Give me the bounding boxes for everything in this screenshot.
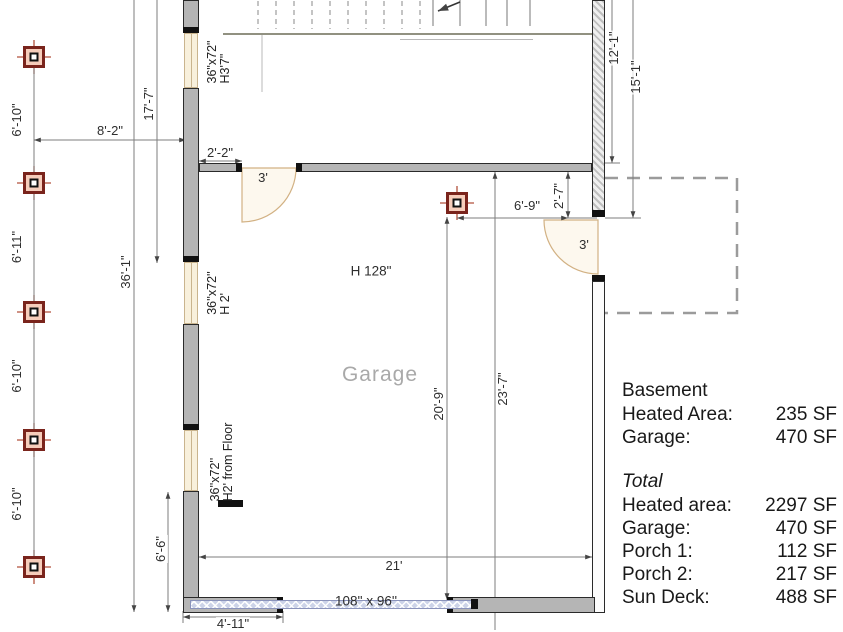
stair-direction-arrow (438, 2, 460, 11)
dim-label-8-2: 8'-2" (96, 124, 124, 138)
summary-row: Porch 2: 217 SF (622, 563, 837, 586)
dim-label-4-11: 4'-11" (216, 617, 250, 631)
column-marker (446, 192, 468, 214)
wall-right-bottom (592, 281, 605, 613)
column-cross-ticks (17, 40, 474, 584)
window-mullion (191, 263, 192, 323)
garage-door-end-cap (471, 599, 478, 609)
summary-row-value: 470 SF (776, 517, 837, 540)
side-door-swing (544, 220, 598, 274)
ceiling-height-label: H 128" (351, 264, 392, 279)
summary-row-label: Heated area: (622, 494, 732, 517)
wall-right-top (592, 0, 605, 217)
dim-label-17-7: 17'-7" (142, 86, 156, 121)
dim-label-21: 21' (385, 559, 404, 573)
floor-plan-canvas: 6'-10" 6'-11" 6'-10" 6'-10" 8'-2" 17'-7"… (0, 0, 843, 632)
wall-left-mid-b (183, 324, 199, 430)
summary-basement-title: Basement (622, 379, 837, 403)
column-core (30, 308, 39, 317)
column-marker (23, 556, 45, 578)
summary-row: Heated area: 2297 SF (622, 494, 837, 517)
interior-door-swing (242, 168, 296, 222)
door-jamb (236, 163, 242, 172)
dim-label-2-7: 2'-7" (552, 182, 566, 210)
dim-label-col-spacing-3: 6'-10" (10, 358, 24, 393)
summary-row-value: 2297 SF (765, 494, 837, 517)
dimension-lines (34, 0, 641, 630)
window-label-3: 36''x72'' H2' from Floor (209, 422, 235, 503)
summary-gap (622, 449, 837, 470)
summary-row-label: Garage: (622, 517, 691, 540)
column-core (30, 53, 39, 62)
dim-label-23-7: 23'-7" (496, 371, 510, 406)
window-note: H3'7" (219, 41, 232, 84)
dim-label-6-9: 6'-9" (513, 199, 541, 213)
summary-row: Heated Area: 235 SF (622, 403, 837, 426)
column-core (30, 563, 39, 572)
column-core (30, 436, 39, 445)
summary-row-label: Garage: (622, 426, 691, 449)
column-marker (23, 172, 45, 194)
summary-row-label: Porch 1: (622, 540, 693, 563)
column-marker (23, 429, 45, 451)
summary-row-label: Sun Deck: (622, 586, 710, 609)
dim-label-col-spacing-2: 6'-11" (10, 230, 24, 264)
window-1 (184, 33, 198, 88)
summary-row: Porch 1: 112 SF (622, 540, 837, 563)
summary-total-title: Total (622, 470, 837, 494)
window-mullion (191, 431, 192, 490)
window-mullion (191, 34, 192, 87)
summary-row: Garage: 470 SF (622, 426, 837, 449)
dim-label-2-2: 2'-2" (206, 146, 234, 160)
window-note: H2' from Floor (222, 423, 235, 502)
dim-label-col-spacing-1: 6'-10" (10, 102, 24, 137)
summary-row-label: Heated Area: (622, 403, 733, 426)
wall-left-bottom (183, 491, 199, 613)
summary-row: Sun Deck: 488 SF (622, 586, 837, 609)
summary-row-value: 217 SF (776, 563, 837, 586)
garage-door-size-label: 108'' x 96'' (335, 594, 397, 609)
summary-row-value: 470 SF (776, 426, 837, 449)
dim-label-20-9: 20'-9" (432, 386, 446, 421)
window-label-2: 36''x72'' H 2' (206, 270, 232, 316)
door-width-label-side: 3' (578, 238, 590, 252)
dim-label-15-1: 15'-1" (629, 59, 643, 94)
window-note: H 2' (219, 271, 232, 315)
door-jamb (592, 210, 605, 217)
column-marker (23, 46, 45, 68)
floor-above-edge (223, 34, 592, 92)
column-core (453, 199, 462, 208)
wall-top-middle (296, 163, 592, 172)
stair-treads (258, 0, 530, 29)
door-width-label-interior: 3' (257, 171, 269, 185)
summary-row: Garage: 470 SF (622, 517, 837, 540)
summary-row-value: 112 SF (777, 540, 837, 563)
dim-label-6-6: 6'-6" (154, 535, 168, 563)
summary-row-value: 488 SF (776, 586, 837, 609)
dim-label-col-spacing-4: 6'-10" (10, 486, 24, 521)
column-marker (23, 301, 45, 323)
window-label-1: 36"x72" H3'7" (206, 40, 232, 85)
summary-row-value: 235 SF (776, 403, 837, 426)
dim-label-12-1: 12'-1" (607, 30, 621, 65)
summary-row-label: Porch 2: (622, 563, 693, 586)
window-2 (184, 262, 198, 324)
door-swings (242, 168, 598, 274)
area-summary: Basement Heated Area: 235 SF Garage: 470… (622, 379, 837, 609)
room-label-garage: Garage (342, 363, 418, 387)
door-jamb (296, 163, 302, 172)
window-3 (184, 430, 198, 491)
deck-dashed-outline (605, 178, 737, 313)
dim-label-36-1: 36'-1" (119, 254, 133, 289)
column-core (30, 179, 39, 188)
wall-left-mid-a (183, 88, 199, 262)
